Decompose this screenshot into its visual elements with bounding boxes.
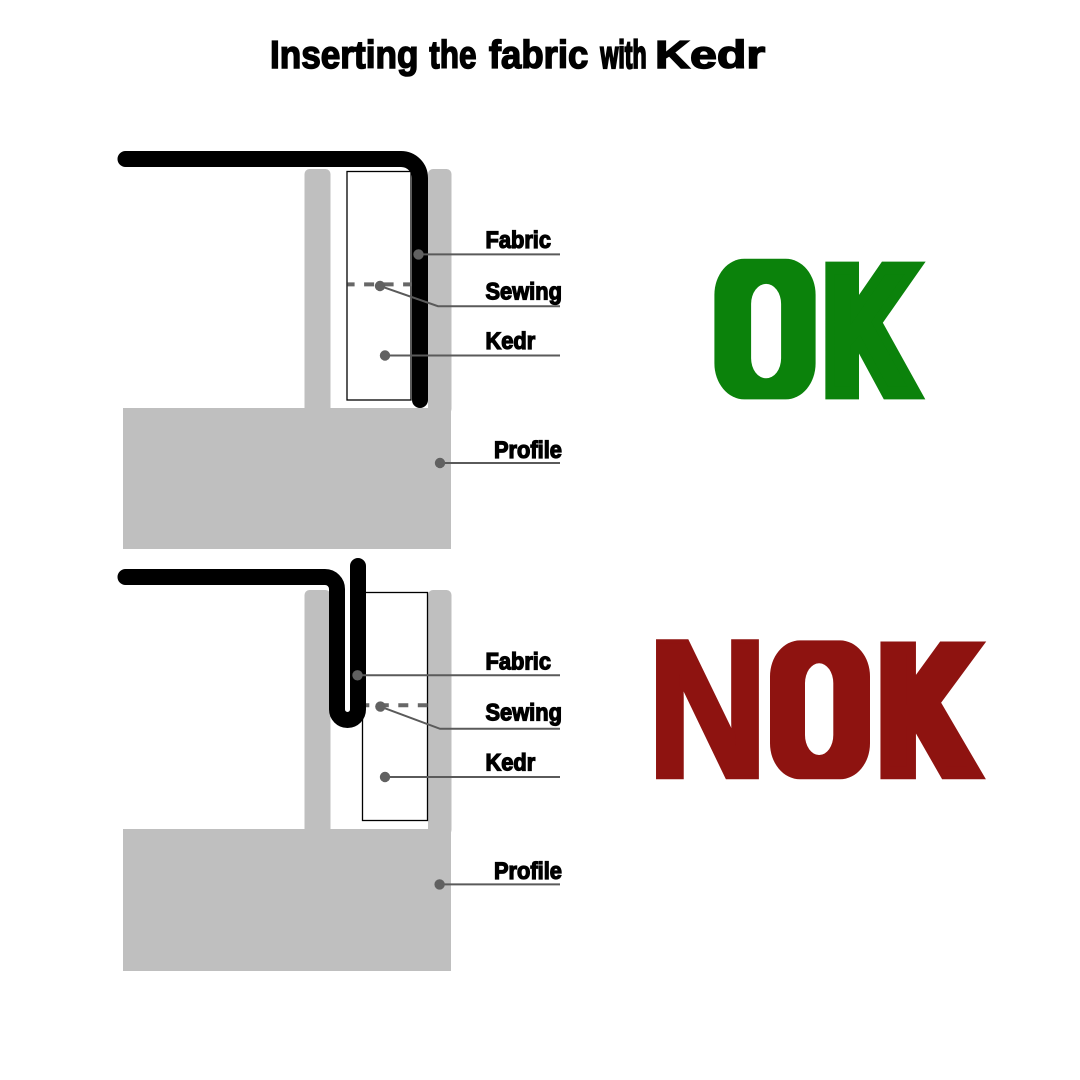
svg-text:Profile: Profile — [494, 857, 562, 884]
svg-text:Kedr: Kedr — [486, 748, 536, 775]
svg-text:Profile: Profile — [494, 436, 562, 463]
svg-text:Fabric: Fabric — [486, 226, 552, 253]
svg-text:Sewing: Sewing — [486, 277, 562, 304]
svg-text:Kedr: Kedr — [486, 327, 536, 354]
svg-text:Inserting: Inserting — [270, 32, 419, 76]
svg-text:K: K — [826, 238, 908, 422]
svg-text:fabric: fabric — [489, 34, 588, 77]
svg-text:Sewing: Sewing — [486, 699, 562, 726]
svg-text:the: the — [429, 33, 476, 77]
svg-text:Fabric: Fabric — [486, 647, 552, 674]
svg-text:with: with — [600, 33, 647, 77]
svg-text:N: N — [648, 602, 766, 816]
svg-text:K: K — [882, 619, 968, 802]
svg-text:Kedr: Kedr — [655, 33, 765, 77]
